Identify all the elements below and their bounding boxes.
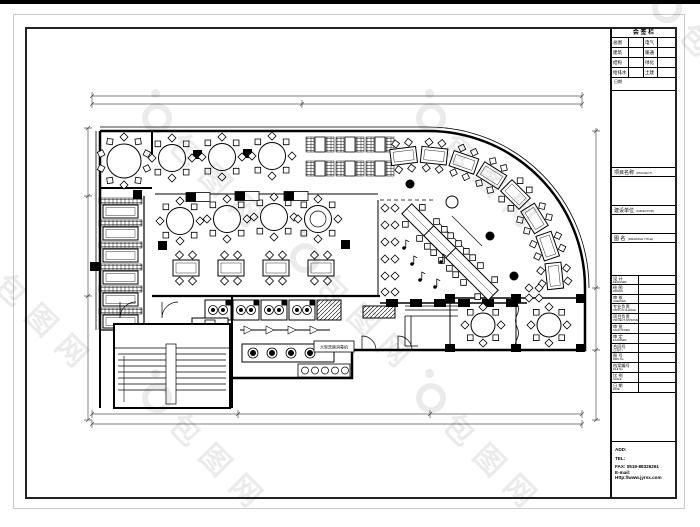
row-value [639,334,675,343]
staircase [114,324,230,408]
bar-counter [363,306,458,346]
hq-label: 给排水 [612,68,629,78]
service-stations [186,192,308,202]
drawing-title-label: 图 名 [614,236,625,242]
row-value [639,344,675,353]
client-section: 建设单位 (DIRECTOR) [612,205,675,215]
wall-banquette-seats [381,204,399,296]
booth-seating [99,198,142,328]
row-value [639,314,675,323]
baotu-logo-icon [0,237,4,279]
hq-footer: 日期 [612,78,675,90]
row-value [639,383,675,392]
title-block: 会 签 栏 总图 电气 建筑 暖通 结构 绿化 给排水 土建 日期 项目名称 (… [610,29,675,497]
hq-label: 建筑 [612,48,629,58]
drawing-title-sub: (DRAWING TITLE) [628,237,653,241]
hq-label: 总图 [612,38,629,48]
hq-cell [629,58,644,68]
contact-block: ADD: TEL: FAX: 0519-88326261 E-mail: Htt… [612,441,675,497]
hq-label: 电气 [644,38,658,48]
row-value [639,363,675,372]
contact-tel: TEL: [615,456,672,462]
floor-plan-drawing: 大型洗碗消毒机 [25,27,610,497]
cad-sheet: 大型洗碗消毒机 [0,0,700,527]
row-value [639,285,675,294]
project-name-sub: (PROJECT) [636,171,652,175]
hq-cell [658,38,675,48]
contact-web: Http://www.jyrsx.com [615,475,672,481]
signature-table: 会 签 栏 总图 电气 建筑 暖通 结构 绿化 给排水 土建 日期 [612,29,675,91]
approval-rows: 设 计DESIGNED 绘 图DRAWN 审 核CHECKED 专业负责PROF… [612,275,675,393]
hq-cell [658,48,675,58]
top-black-strip [0,0,700,4]
project-name-section: 项目名称 (PROJECT) [612,167,675,177]
signature-table-header: 会 签 栏 [612,29,675,38]
hq-cell [629,48,644,58]
row-value [639,324,675,333]
hq-label: 绿化 [644,58,658,68]
dishwasher-label: 大型洗碗消毒机 [320,344,348,350]
client-label: 建设单位 [614,208,634,214]
hq-label: 结构 [612,58,629,68]
client-sub: (DIRECTOR) [636,209,654,213]
corner-seat-cluster [525,284,543,302]
contact-add: ADD: [615,447,672,453]
row-value [639,373,675,382]
row-value [639,353,675,362]
four-seat-tables [173,251,334,285]
top-booths [306,137,394,176]
hq-label: 土建 [644,68,658,78]
doors [120,168,412,350]
row-value [639,304,675,313]
row-value [639,295,675,304]
diagonal-tables [395,197,504,306]
hq-cell [629,38,644,48]
hq-cell [658,58,675,68]
round-column [446,196,458,208]
hq-cell [629,68,644,78]
structural-columns [90,149,585,352]
project-name-label: 项目名称 [614,170,634,176]
hq-cell [658,68,675,78]
drawing-title-section: 图 名 (DRAWING TITLE) [612,233,675,243]
row-value [639,276,675,284]
hq-label: 暖通 [644,48,658,58]
